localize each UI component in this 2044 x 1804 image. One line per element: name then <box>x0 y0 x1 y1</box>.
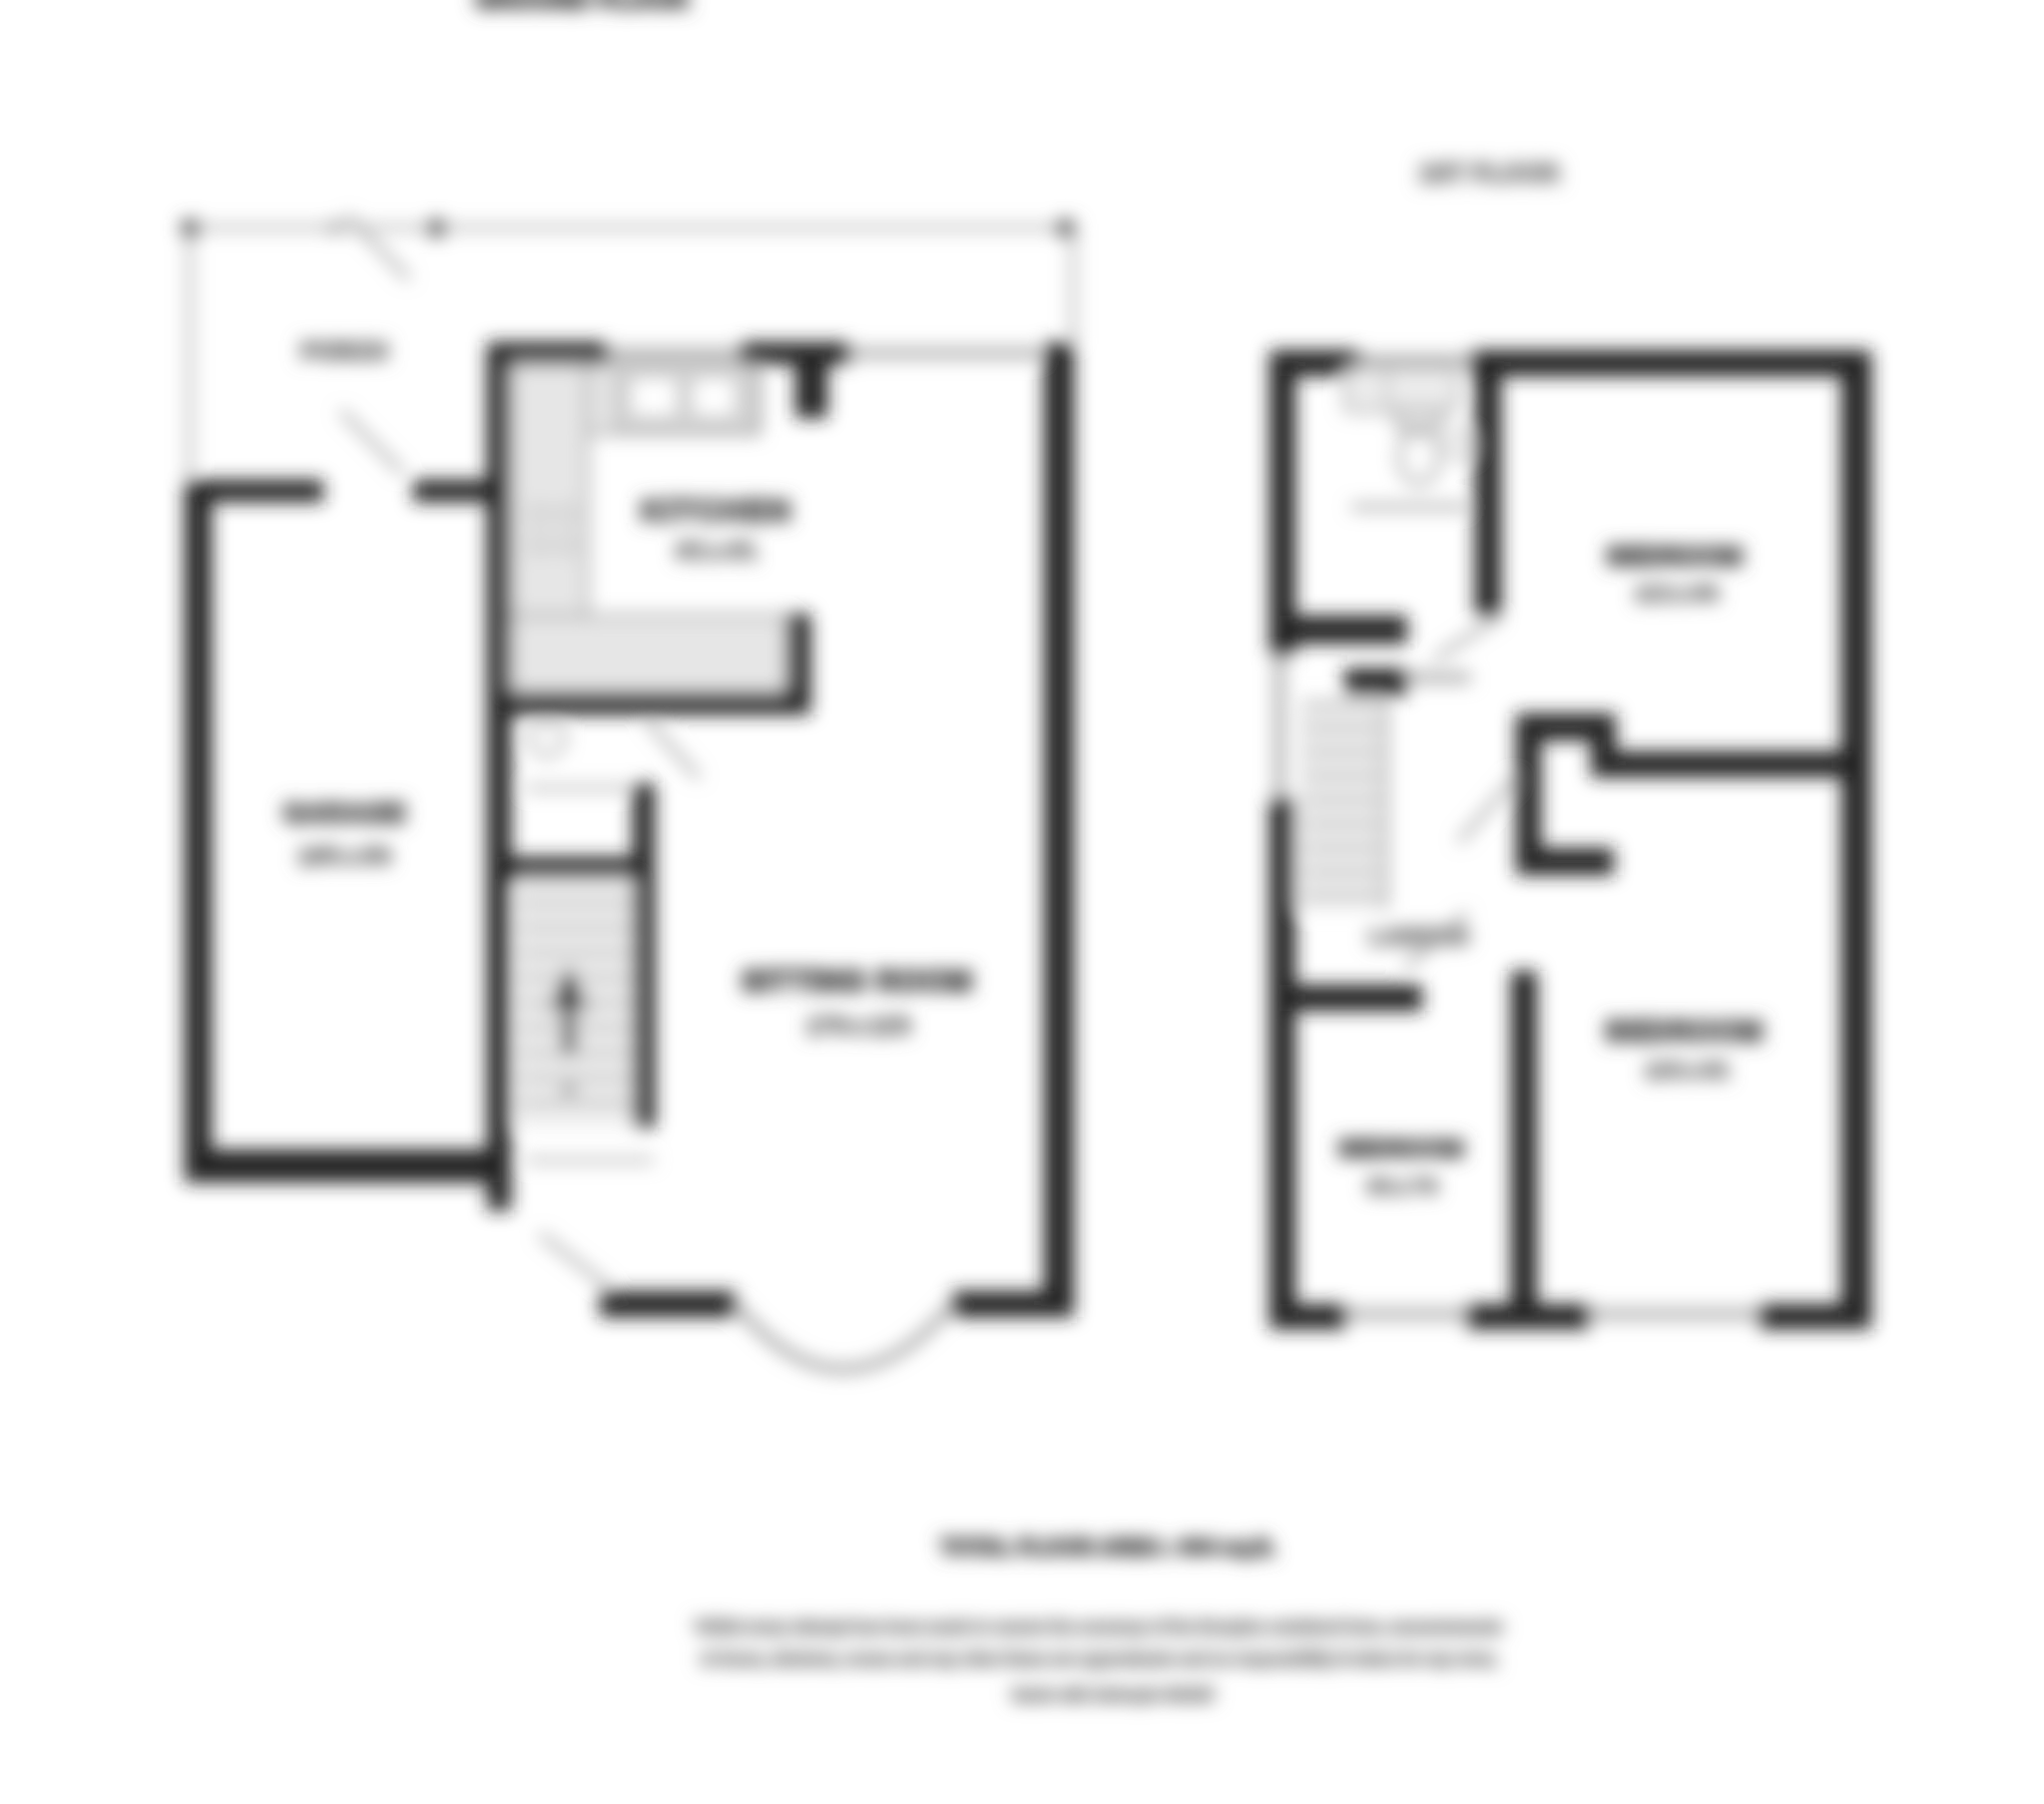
svg-text:1ST FLOOR: 1ST FLOOR <box>1419 160 1559 188</box>
svg-text:BEDROOM: BEDROOM <box>1606 1016 1764 1048</box>
svg-text:BEDROOM: BEDROOM <box>1338 1135 1463 1162</box>
svg-text:Whilst every attempt has been: Whilst every attempt has been made to en… <box>696 1617 1503 1636</box>
svg-text:8'2 x 7'6: 8'2 x 7'6 <box>1367 1177 1437 1198</box>
svg-text:11'5 x 9'2: 11'5 x 9'2 <box>1646 1061 1729 1083</box>
svg-text:GARAGE: GARAGE <box>283 797 406 828</box>
svg-text:KITCHEN: KITCHEN <box>641 493 792 528</box>
svg-text:17'9 x 11'5: 17'9 x 11'5 <box>806 1014 909 1039</box>
svg-text:9'2 x 8'1: 9'2 x 8'1 <box>677 539 758 564</box>
svg-text:11'2 x 9'6: 11'2 x 9'6 <box>1636 584 1719 606</box>
svg-text:TOTAL FLOOR AREA : 904 sq.ft.: TOTAL FLOOR AREA : 904 sq.ft. <box>940 1535 1276 1560</box>
svg-text:of doors, windows, rooms and a: of doors, windows, rooms and any other i… <box>701 1649 1497 1668</box>
svg-text:16'5 x 8'9: 16'5 x 8'9 <box>298 844 391 869</box>
svg-text:PORCH: PORCH <box>301 338 388 365</box>
svg-text:SITTING ROOM: SITTING ROOM <box>742 965 973 998</box>
svg-text:GROUND FLOOR: GROUND FLOOR <box>475 0 689 14</box>
svg-text:Made with Metropix ©2025: Made with Metropix ©2025 <box>1012 1685 1214 1704</box>
svg-text:BEDROOM: BEDROOM <box>1607 541 1743 571</box>
